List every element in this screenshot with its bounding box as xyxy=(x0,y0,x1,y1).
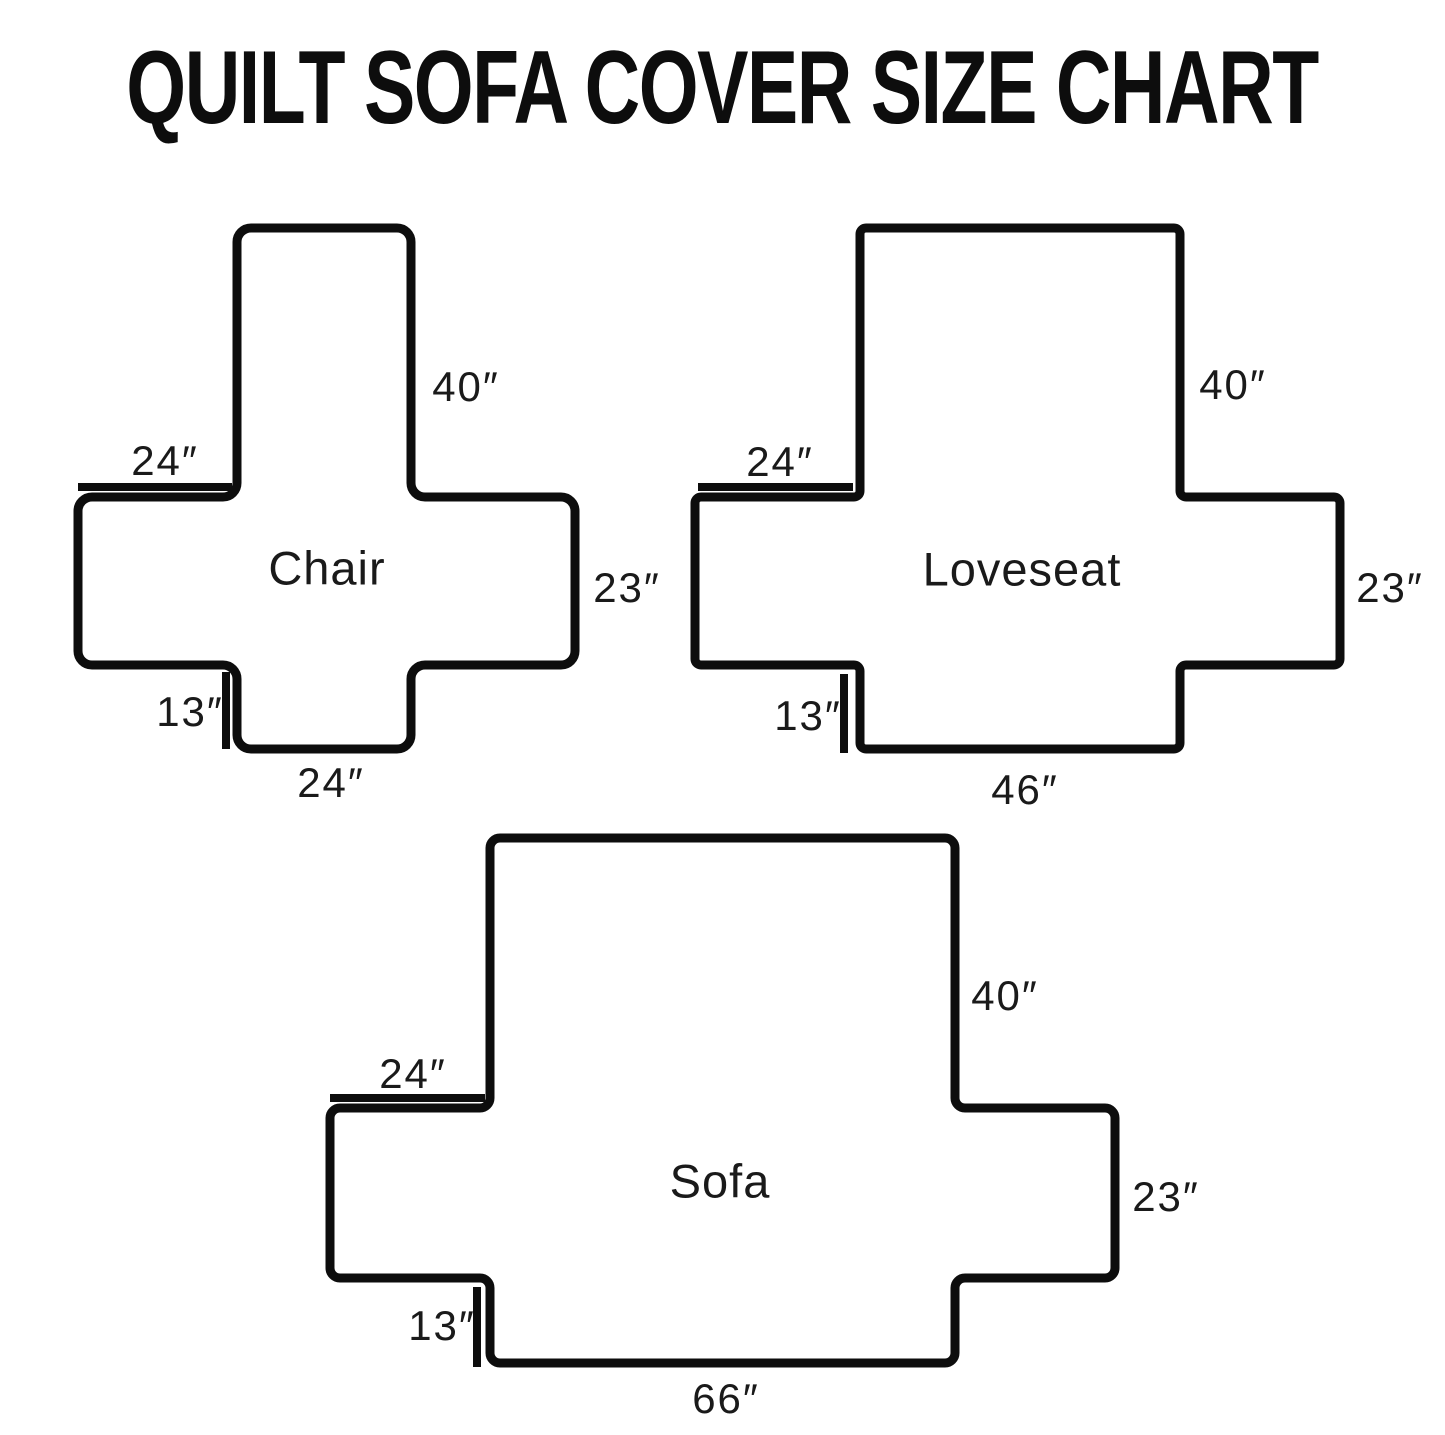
loveseat-skirt-label: 13″ xyxy=(774,692,842,740)
chair-seat-width-label: 24″ xyxy=(297,759,365,807)
loveseat-name-label: Loveseat xyxy=(923,542,1122,597)
sofa-back-height-label: 40″ xyxy=(971,972,1039,1020)
chair-skirt-label: 13″ xyxy=(156,688,224,736)
sofa-arm-width-label: 24″ xyxy=(379,1050,447,1098)
chair-name-label: Chair xyxy=(268,541,385,596)
loveseat-back-height-label: 40″ xyxy=(1199,361,1267,409)
loveseat-arm-width-label: 24″ xyxy=(746,438,814,486)
sofa-name-label: Sofa xyxy=(670,1154,771,1209)
chair-arm-width-label: 24″ xyxy=(131,437,199,485)
chair-side-depth-label: 23″ xyxy=(593,564,661,612)
sofa-side-depth-label: 23″ xyxy=(1132,1173,1200,1221)
loveseat-seat-width-label: 46″ xyxy=(991,766,1059,814)
size-chart: QUILT SOFA COVER SIZE CHART 40″ 24″ Chai… xyxy=(0,0,1445,1435)
loveseat-side-depth-label: 23″ xyxy=(1356,564,1424,612)
chair-back-height-label: 40″ xyxy=(432,363,500,411)
sofa-skirt-label: 13″ xyxy=(408,1302,476,1350)
sofa-seat-width-label: 66″ xyxy=(692,1375,760,1423)
